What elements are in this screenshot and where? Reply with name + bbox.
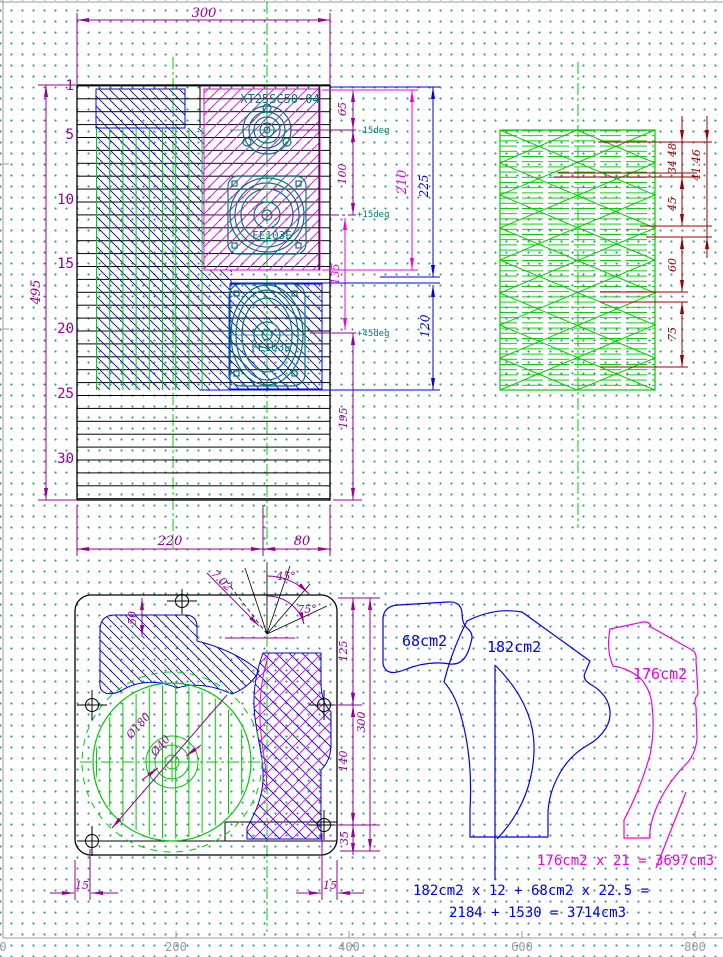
- dim-label-300-depth: 300: [355, 712, 368, 733]
- area-label-182: 182cm2: [487, 638, 541, 656]
- ruler-labels: 0 200 400 600 800: [0, 940, 706, 954]
- ruler-tick-label-200: 200: [165, 940, 187, 954]
- volume-formula-176: 176cm2 x 21 = 3697cm3: [537, 853, 714, 869]
- dim-label-120: 120: [418, 314, 432, 337]
- woofer-cavity: [80, 672, 262, 852]
- volume-formula-182-line2: 2184 + 1530 = 3714cm3: [449, 905, 626, 921]
- area-label-176: 176cm2: [633, 665, 687, 683]
- angle-label-woofer: +45deg: [357, 329, 390, 339]
- row-label-1: 1: [66, 78, 74, 94]
- ruler-tick-label-800: 800: [684, 940, 706, 954]
- side-panel-view: 48 34 41.46 45 60 75: [500, 116, 712, 390]
- area-shape-176: [609, 622, 698, 838]
- volume-formula-182-line1: 182cm2 x 12 + 68cm2 x 22.5 =: [413, 883, 649, 899]
- row-label-25: 25: [57, 386, 74, 402]
- dim-label-195: 195: [337, 408, 350, 429]
- vertical-board-hatch: [96, 128, 204, 390]
- row-label-5: 5: [66, 127, 74, 143]
- angle-label-tweeter: -15deg: [357, 126, 390, 136]
- cad-canvas[interactable]: 0 200 400 600 800 XT25SC50-04: [0, 0, 723, 957]
- tweeter-model-label: XT25SC50-04: [240, 92, 319, 106]
- dim-label-48: 48: [666, 143, 679, 158]
- dim-label-225: 225: [417, 175, 431, 199]
- row-label-20: 20: [57, 321, 74, 337]
- dim-label-50: 50: [126, 611, 139, 625]
- dim-label-34: 34: [666, 160, 679, 174]
- dim-label-125: 125: [337, 641, 350, 662]
- dim-label-45: 45: [666, 197, 679, 212]
- dim-label-100: 100: [336, 164, 349, 185]
- brace-hatch-top: [96, 89, 185, 128]
- row-label-10: 10: [57, 192, 74, 208]
- ruler-tick-label-400: 400: [338, 940, 360, 954]
- side-wall-crosshatch: [247, 653, 331, 839]
- angle-label-mid: +15deg: [357, 210, 390, 220]
- row-label-15: 15: [57, 256, 74, 272]
- ruler-tick-label-0: 0: [0, 940, 7, 954]
- baffle-hatch-magenta: [204, 89, 320, 270]
- area-label-68: 68cm2: [402, 632, 447, 650]
- dim-label-220: 220: [157, 534, 183, 549]
- dim-label-210: 210: [395, 170, 410, 196]
- woofer-model-label: FE103E: [251, 341, 291, 354]
- dim-label-45deg: 45°: [275, 570, 296, 583]
- area-shape-182-arc: [495, 665, 534, 839]
- mid-model-label: FE103E: [252, 229, 292, 242]
- dim-label-7-02: 7.02: [208, 567, 235, 594]
- dim-label-41-46: 41.46: [690, 149, 703, 182]
- dim-label-height-495: 495: [29, 280, 44, 306]
- dim-label-35: 35: [338, 831, 351, 845]
- front-view: XT25SC50-04 FE103E FE103E: [29, 6, 440, 556]
- dim-label-15-left: 15: [75, 879, 89, 892]
- dim-label-60: 60: [666, 258, 679, 272]
- dim-label-65: 65: [336, 102, 349, 116]
- dim-label-75deg: 75°: [297, 603, 317, 616]
- dim-label-75: 75: [666, 327, 679, 341]
- cad-viewport: 0 200 400 600 800 XT25SC50-04: [0, 0, 723, 957]
- top-chamber-hatch: [100, 615, 259, 694]
- ruler-tick-label-600: 600: [511, 940, 533, 954]
- section-view: 50 7.02 45° 75° Ø180 Ø40 125 140 35 300 …: [50, 562, 380, 900]
- dim-label-80: 80: [294, 534, 311, 549]
- row-label-30: 30: [57, 451, 74, 467]
- dim-label-140: 140: [337, 751, 350, 772]
- dim-label-135: 135: [329, 264, 342, 285]
- dim-label-width-300: 300: [192, 6, 217, 21]
- dim-label-15-right: 15: [323, 879, 337, 892]
